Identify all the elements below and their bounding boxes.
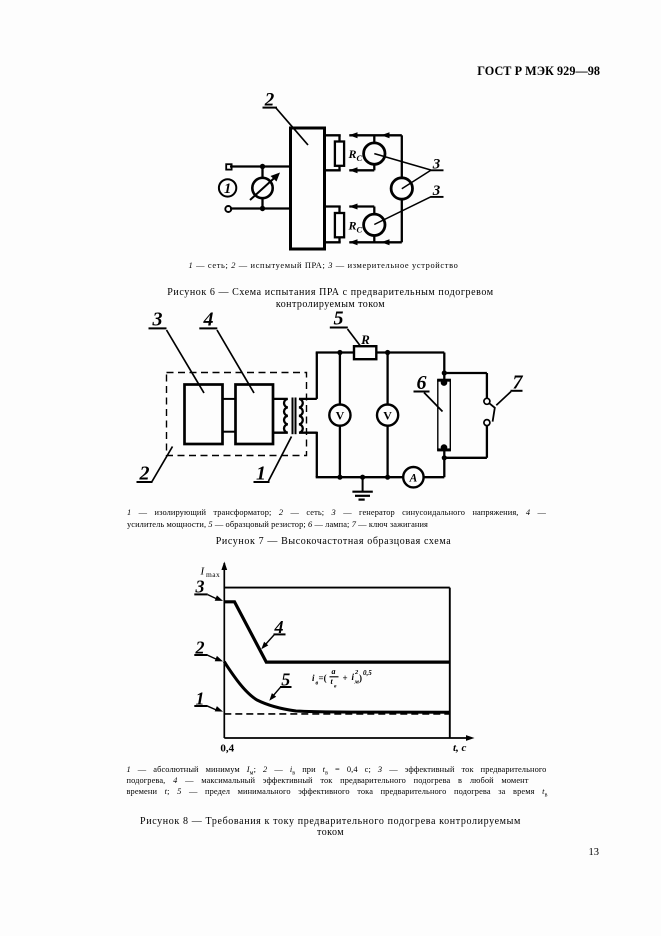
svg-text:0,4: 0,4 <box>220 742 234 754</box>
svg-text:3: 3 <box>195 576 205 596</box>
svg-text:+: + <box>343 673 348 683</box>
svg-text:=(: =( <box>319 673 327 683</box>
svg-text:): ) <box>359 673 362 683</box>
svg-text:t, с: t, с <box>453 742 467 754</box>
svg-text:0,5: 0,5 <box>363 669 372 677</box>
svg-text:в: в <box>334 684 337 690</box>
svg-text:max: max <box>206 570 220 579</box>
svg-text:a: a <box>332 667 336 676</box>
